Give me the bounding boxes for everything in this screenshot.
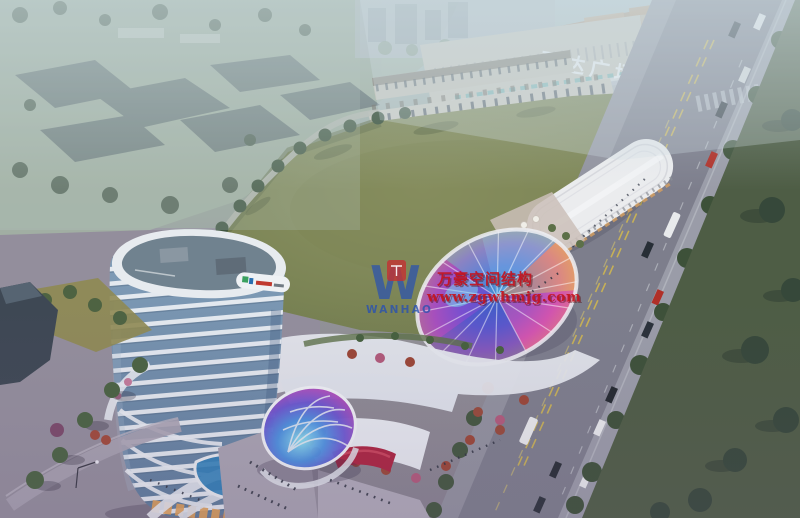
watermark-line1: 万豪空间结构 xyxy=(436,270,533,288)
architectural-rendering: 万达广场 xyxy=(0,0,800,518)
watermark-line2: www.zgwhmjg.com xyxy=(426,290,581,306)
watermark-brand: WANHAO xyxy=(366,304,433,316)
